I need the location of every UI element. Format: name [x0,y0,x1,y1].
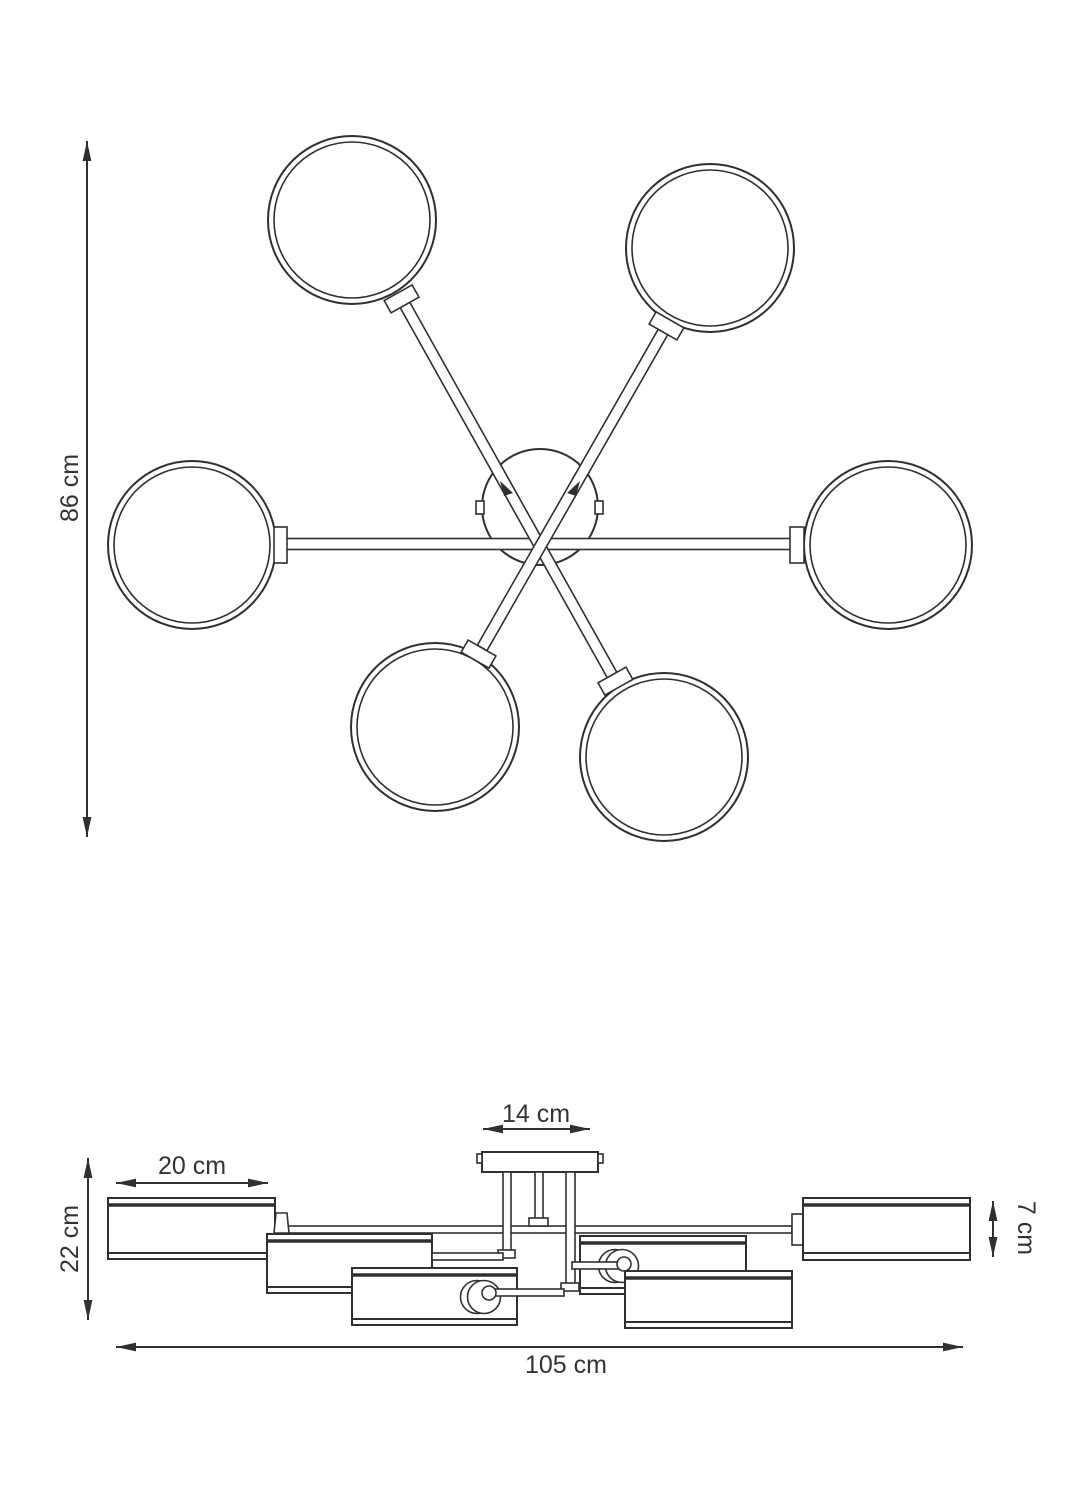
joint-boss [482,1286,496,1300]
collar-right [790,527,804,563]
shade-left-connector [274,1213,289,1233]
rod-to-right-middle-shade [572,1262,620,1269]
dimension-top-height: 86 cm [56,141,87,837]
lamp-dimension-drawing: 86 cm [0,0,1080,1512]
globe-inner [632,170,788,326]
shade-body [803,1198,970,1260]
rod-to-middle-left-shade [432,1253,503,1260]
shade-right-connector [792,1214,803,1245]
dimension-canopy-width: 14 cm [483,1100,590,1129]
globe-inner [357,649,513,805]
globe-top-left [268,136,436,304]
globe-bottom-right [580,673,748,841]
side-canopy-plate [482,1152,598,1172]
globe-inner [114,467,270,623]
globe-right [804,461,972,629]
canopy-left-nub [476,501,484,514]
globe-inner [810,467,966,623]
collar-left [274,527,287,563]
canopy-rod-middle-foot [529,1218,548,1226]
side-view: 14 cm 20 cm 22 cm 7 cm 105 cm [56,1100,1040,1379]
canopy-rod-left [503,1172,511,1252]
shade-body [108,1198,275,1259]
rod-to-lower-shade [490,1289,564,1296]
dimension-label-105: 105 cm [525,1351,607,1379]
canopy-rod-middle [535,1172,543,1220]
canopy-rod-right [566,1172,575,1290]
dimension-shade-height: 7 cm [993,1201,1040,1257]
dimension-label-7: 7 cm [1012,1201,1040,1255]
dimension-fixture-height: 22 cm [56,1158,88,1320]
globe-inner [586,679,742,835]
globe-left [108,461,276,629]
dimension-label-20: 20 cm [158,1152,226,1180]
joint-boss [617,1257,631,1271]
dimension-shade-width: 20 cm [116,1152,268,1183]
diagram-svg: 86 cm [0,0,1080,1512]
side-canopy-left-nub [477,1154,482,1163]
canopy-right-nub [595,501,603,514]
side-arm-horizontal [288,1226,792,1233]
dimension-label-86: 86 cm [56,454,84,522]
globe-top-right [626,164,794,332]
dimension-total-width: 105 cm [116,1347,963,1379]
dimension-label-14: 14 cm [502,1100,570,1128]
side-canopy-right-nub [598,1154,603,1163]
side-shade-left [108,1198,289,1259]
top-view: 86 cm [56,136,972,841]
side-shade-right [792,1198,970,1260]
side-shade-bottom-right [625,1271,792,1328]
globe-bottom-left [351,643,519,811]
dimension-label-22: 22 cm [56,1205,84,1273]
globe-inner [274,142,430,298]
